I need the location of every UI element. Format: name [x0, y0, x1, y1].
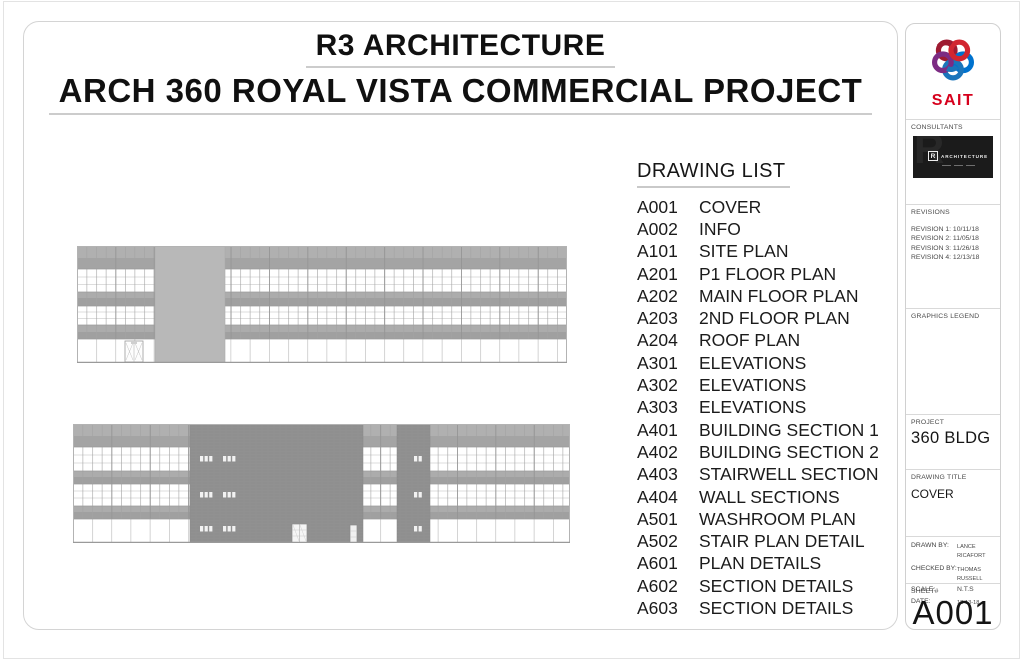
drawing-name: BUILDING SECTION 1: [699, 420, 879, 441]
drawing-title-value: COVER: [911, 487, 995, 501]
drawing-number: A401: [637, 420, 699, 441]
drawing-row: A204 ROOF PLAN: [637, 330, 879, 352]
drawing-title-label: DRAWING TITLE: [911, 474, 995, 481]
drawing-name: ELEVATIONS: [699, 397, 806, 418]
drawn-by-row: DRAWN BY: LANCE RICAFORT: [911, 542, 995, 560]
drawn-by-label: DRAWN BY:: [911, 542, 957, 560]
graphics-legend-label: GRAPHICS LEGEND: [911, 313, 995, 320]
r3-logo-mark: R: [928, 151, 938, 161]
drawing-name: WASHROOM PLAN: [699, 509, 856, 530]
drawing-row: A501 WASHROOM PLAN: [637, 508, 879, 530]
drawing-list-header: DRAWING LIST: [637, 160, 790, 188]
consultant-card: R R ARCHITECTURE: [913, 136, 993, 178]
drawing-name: WALL SECTIONS: [699, 487, 840, 508]
checked-by-label: CHECKED BY:: [911, 565, 957, 583]
drawing-row: A201 P1 FLOOR PLAN: [637, 263, 879, 285]
revision-entry: REVISION 2: 11/05/18: [911, 234, 995, 243]
drawing-row: A402 BUILDING SECTION 2: [637, 441, 879, 463]
drawing-name: STAIR PLAN DETAIL: [699, 531, 865, 552]
drawing-row: A202 MAIN FLOOR PLAN: [637, 285, 879, 307]
drawing-number: A602: [637, 576, 699, 597]
drawing-name: PLAN DETAILS: [699, 553, 821, 574]
drawing-number: A101: [637, 241, 699, 262]
drawing-name: SITE PLAN: [699, 241, 788, 262]
firm-heading: R3 ARCHITECTURE: [306, 29, 616, 68]
drawing-name: INFO: [699, 219, 741, 240]
drawing-row: A403 STAIRWELL SECTION: [637, 464, 879, 486]
sheet-number: A001: [911, 596, 995, 629]
drawing-number: A601: [637, 553, 699, 574]
drawing-row: A404 WALL SECTIONS: [637, 486, 879, 508]
title-block-sidebar: SAIT CONSULTANTS R R ARCHITECTURE REVISI…: [905, 23, 1001, 630]
revision-entry: REVISION 3: 11/26/18: [911, 244, 995, 253]
drawing-name: 2ND FLOOR PLAN: [699, 308, 850, 329]
drawing-row: A502 STAIR PLAN DETAIL: [637, 530, 879, 552]
drawing-number: A204: [637, 330, 699, 351]
drawing-row: A001 COVER: [637, 196, 879, 218]
drawing-name: STAIRWELL SECTION: [699, 464, 879, 485]
drawing-number: A203: [637, 308, 699, 329]
drawing-row: A101 SITE PLAN: [637, 241, 879, 263]
drawing-name: SECTION DETAILS: [699, 598, 853, 619]
entry-door-detail: [125, 341, 143, 362]
drawing-number: A502: [637, 531, 699, 552]
drawing-row: A302 ELEVATIONS: [637, 374, 879, 396]
drawing-row: A601 PLAN DETAILS: [637, 553, 879, 575]
drawing-number: A301: [637, 353, 699, 374]
project-heading: ARCH 360 ROYAL VISTA COMMERCIAL PROJECT: [49, 72, 873, 115]
drawing-row: A401 BUILDING SECTION 1: [637, 419, 879, 441]
revisions-list: REVISION 1: 10/11/18 REVISION 2: 11/05/1…: [911, 225, 995, 263]
logo-section: SAIT: [906, 24, 1000, 119]
drawing-name: ELEVATIONS: [699, 353, 806, 374]
drawing-number: A002: [637, 219, 699, 240]
info-section: DRAWN BY: LANCE RICAFORT CHECKED BY: THO…: [906, 536, 1000, 583]
r3-brand-text: ARCHITECTURE: [941, 154, 988, 159]
revision-entry: REVISION 1: 10/11/18: [911, 225, 995, 234]
drawing-name: ELEVATIONS: [699, 375, 806, 396]
drawing-number: A402: [637, 442, 699, 463]
project-value: 360 BLDG: [911, 429, 995, 448]
drawing-name: BUILDING SECTION 2: [699, 442, 879, 463]
sait-knot-icon: [924, 32, 982, 86]
drawing-list-rows: A001 COVER A002 INFO A101 SITE PLAN A201…: [637, 196, 879, 620]
revisions-label: REVISIONS: [911, 209, 995, 216]
drawing-name: SECTION DETAILS: [699, 576, 853, 597]
elevation-drawing-top: [77, 246, 567, 363]
drawing-number: A302: [637, 375, 699, 396]
consultants-label: CONSULTANTS: [911, 124, 995, 131]
drawing-number: A201: [637, 264, 699, 285]
r3-tagline-rule: [942, 165, 975, 166]
drawing-title-section: DRAWING TITLE COVER: [906, 469, 1000, 536]
drawing-number: A603: [637, 598, 699, 619]
drawing-name: ROOF PLAN: [699, 330, 800, 351]
sait-wordmark: SAIT: [911, 92, 995, 110]
drawing-list: DRAWING LIST A001 COVER A002 INFO A101 S…: [637, 160, 879, 620]
drawing-row: A203 2ND FLOOR PLAN: [637, 307, 879, 329]
drawing-number: A501: [637, 509, 699, 530]
drawing-number: A001: [637, 197, 699, 218]
revisions-section: REVISIONS REVISION 1: 10/11/18 REVISION …: [906, 204, 1000, 308]
elevation-drawing-bottom: [73, 424, 570, 543]
revision-entry: REVISION 4: 12/13/18: [911, 253, 995, 262]
drawing-row: A603 SECTION DETAILS: [637, 597, 879, 619]
drawing-number: A403: [637, 464, 699, 485]
drawing-number: A404: [637, 487, 699, 508]
project-section: PROJECT 360 BLDG: [906, 414, 1000, 469]
drawing-number: A202: [637, 286, 699, 307]
consultants-section: CONSULTANTS R R ARCHITECTURE: [906, 119, 1000, 204]
drawing-row: A002 INFO: [637, 218, 879, 240]
checked-by-value: THOMAS RUSSELL: [957, 565, 995, 583]
cover-sheet: R3 ARCHITECTURE ARCH 360 ROYAL VISTA COM…: [0, 0, 1024, 662]
drawing-name: P1 FLOOR PLAN: [699, 264, 836, 285]
drawing-row: A303 ELEVATIONS: [637, 397, 879, 419]
drawn-by-value: LANCE RICAFORT: [957, 542, 995, 560]
graphics-legend-section: GRAPHICS LEGEND: [906, 308, 1000, 414]
drawing-name: COVER: [699, 197, 761, 218]
firm-heading-wrap: R3 ARCHITECTURE: [23, 29, 898, 68]
r3-logo-row: R ARCHITECTURE: [928, 151, 988, 161]
checked-by-row: CHECKED BY: THOMAS RUSSELL: [911, 565, 995, 583]
drawing-row: A602 SECTION DETAILS: [637, 575, 879, 597]
drawing-name: MAIN FLOOR PLAN: [699, 286, 858, 307]
project-label: PROJECT: [911, 419, 995, 426]
drawing-number: A303: [637, 397, 699, 418]
drawing-row: A301 ELEVATIONS: [637, 352, 879, 374]
project-heading-wrap: ARCH 360 ROYAL VISTA COMMERCIAL PROJECT: [23, 72, 898, 115]
